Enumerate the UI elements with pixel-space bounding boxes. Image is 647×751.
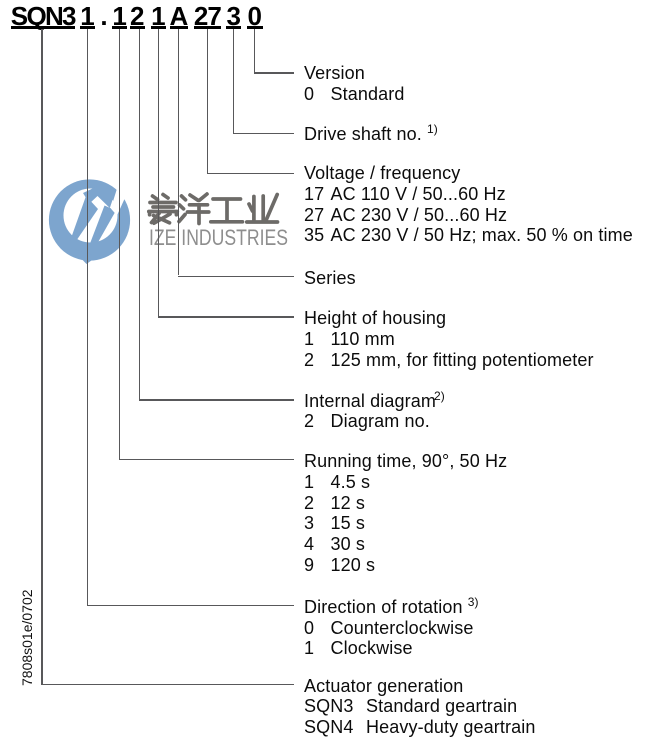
- svg-text:IZE INDUSTRIES: IZE INDUSTRIES: [149, 225, 288, 250]
